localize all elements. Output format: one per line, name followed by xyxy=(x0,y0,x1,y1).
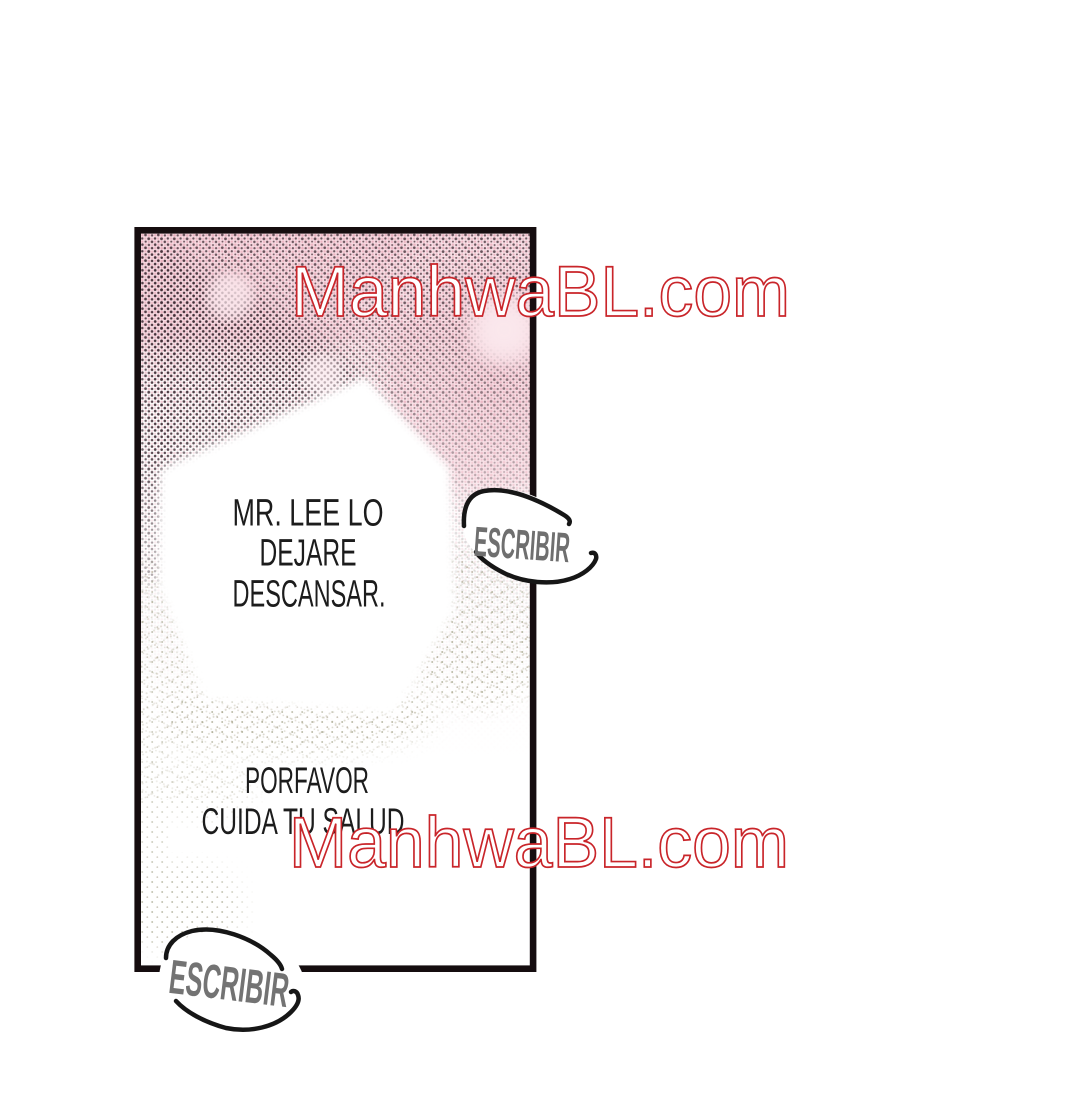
svg-text:MR. LEE LO: MR. LEE LO xyxy=(233,493,384,535)
svg-text:ManhwaBL.com: ManhwaBL.com xyxy=(291,252,790,332)
svg-text:ManhwaBL.com: ManhwaBL.com xyxy=(289,803,789,883)
svg-text:ESCRIBIR: ESCRIBIR xyxy=(473,518,572,572)
svg-text:DEJARE: DEJARE xyxy=(260,533,357,575)
svg-text:DESCANSAR.: DESCANSAR. xyxy=(233,574,386,616)
svg-text:PORFAVOR: PORFAVOR xyxy=(245,760,369,801)
